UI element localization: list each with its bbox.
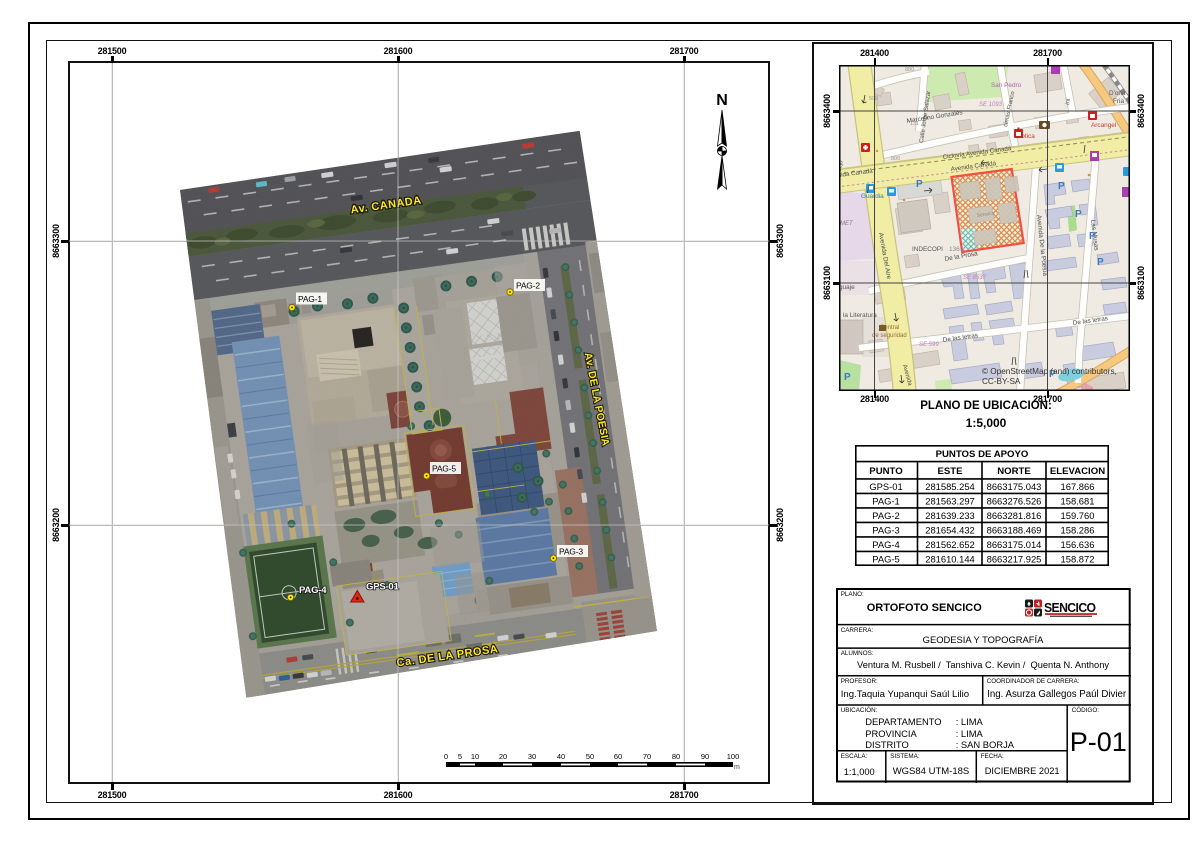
svg-text:PAG-1: PAG-1	[872, 495, 899, 506]
svg-text:N: N	[716, 92, 728, 109]
svg-text:CC-BY-SA: CC-BY-SA	[982, 377, 1021, 386]
svg-text:70: 70	[643, 752, 651, 761]
svg-text:159.760: 159.760	[1061, 510, 1095, 521]
svg-text:NORTE: NORTE	[997, 466, 1031, 477]
svg-text:30: 30	[528, 752, 536, 761]
svg-text:8663276.526: 8663276.526	[987, 495, 1042, 506]
svg-text:PAG-1: PAG-1	[298, 294, 322, 304]
svg-text:Guardia: Guardia	[861, 193, 884, 200]
svg-text:INDECOPI: INDECOPI	[912, 246, 943, 253]
svg-text:P: P	[916, 179, 923, 190]
svg-text:5: 5	[458, 752, 462, 761]
svg-text:50: 50	[586, 752, 594, 761]
svg-text:131: 131	[910, 121, 919, 127]
svg-text:P: P	[1075, 209, 1082, 220]
svg-text:PUNTO: PUNTO	[869, 466, 903, 477]
svg-text:8663175.043: 8663175.043	[987, 481, 1042, 492]
svg-text:8663175.014: 8663175.014	[987, 539, 1042, 550]
svg-text:PUNTOS DE APOYO: PUNTOS DE APOYO	[936, 449, 1029, 460]
svg-text:ini: ini	[1065, 98, 1072, 105]
svg-text:SE 599: SE 599	[919, 342, 939, 348]
svg-text:40: 40	[557, 752, 565, 761]
svg-text:guaje: guaje	[839, 284, 855, 291]
svg-text:P: P	[1058, 181, 1065, 192]
svg-text:ESTE: ESTE	[937, 466, 963, 477]
svg-text:20: 20	[499, 752, 507, 761]
svg-text:90: 90	[701, 752, 709, 761]
svg-text:Arcangel: Arcangel	[1091, 122, 1116, 129]
svg-text:Fria: Fria	[1113, 98, 1124, 105]
svg-text:PAG-3: PAG-3	[559, 547, 583, 557]
svg-text:10: 10	[471, 752, 479, 761]
svg-text:8663188.469: 8663188.469	[987, 524, 1042, 535]
svg-text:PAG-5: PAG-5	[432, 464, 456, 474]
svg-text:GPS-01: GPS-01	[869, 481, 902, 492]
svg-text:MET: MET	[840, 221, 854, 227]
svg-text:0: 0	[444, 752, 448, 761]
svg-text:8663217.925: 8663217.925	[987, 553, 1042, 564]
svg-text:P: P	[1089, 231, 1096, 242]
svg-text:P: P	[1097, 257, 1104, 268]
svg-text:San Pedro: San Pedro	[991, 82, 1022, 89]
svg-text:60: 60	[614, 752, 622, 761]
svg-text:80: 80	[672, 752, 680, 761]
svg-text:158.286: 158.286	[1061, 524, 1095, 535]
svg-text:100: 100	[727, 752, 740, 761]
svg-text:SE 8537: SE 8537	[963, 275, 987, 281]
svg-text:D'ona: D'ona	[1109, 90, 1126, 97]
svg-text:281585.254: 281585.254	[925, 481, 975, 492]
svg-text:© OpenStreetMap (and) contribu: © OpenStreetMap (and) contributors,	[982, 367, 1117, 376]
svg-text:8663281.816: 8663281.816	[987, 510, 1042, 521]
svg-text:156.636: 156.636	[1061, 539, 1095, 550]
svg-text:GPS-01: GPS-01	[366, 582, 400, 593]
svg-text:de seguridad: de seguridad	[872, 333, 907, 339]
svg-text:PAG-4: PAG-4	[872, 539, 899, 550]
svg-text:PAG-4: PAG-4	[299, 585, 327, 596]
svg-text:281563.297: 281563.297	[925, 495, 975, 506]
svg-text:SE 1093: SE 1093	[979, 102, 1003, 108]
svg-text:158.681: 158.681	[1061, 495, 1095, 506]
svg-text:281639.233: 281639.233	[925, 510, 975, 521]
svg-text:PAG-2: PAG-2	[872, 510, 899, 521]
svg-text:880: 880	[905, 67, 914, 73]
svg-text:281610.144: 281610.144	[925, 553, 975, 564]
svg-text:599: 599	[869, 96, 878, 102]
svg-text:la Literatura: la Literatura	[843, 312, 877, 319]
svg-text:PAG-2: PAG-2	[516, 281, 540, 291]
svg-text:281654.432: 281654.432	[925, 524, 975, 535]
svg-text:PAG-3: PAG-3	[872, 524, 899, 535]
svg-text:800: 800	[891, 156, 900, 162]
svg-text:SENCICO: SENCICO	[1044, 599, 1096, 615]
svg-text:ELEVACION: ELEVACION	[1050, 466, 1105, 477]
svg-text:P: P	[844, 372, 851, 383]
svg-text:m: m	[734, 764, 740, 771]
svg-text:158.872: 158.872	[1061, 553, 1095, 564]
svg-text:PAG-5: PAG-5	[872, 553, 899, 564]
svg-text:167.866: 167.866	[1061, 481, 1095, 492]
svg-text:281562.652: 281562.652	[925, 539, 975, 550]
svg-text:136: 136	[949, 246, 960, 253]
